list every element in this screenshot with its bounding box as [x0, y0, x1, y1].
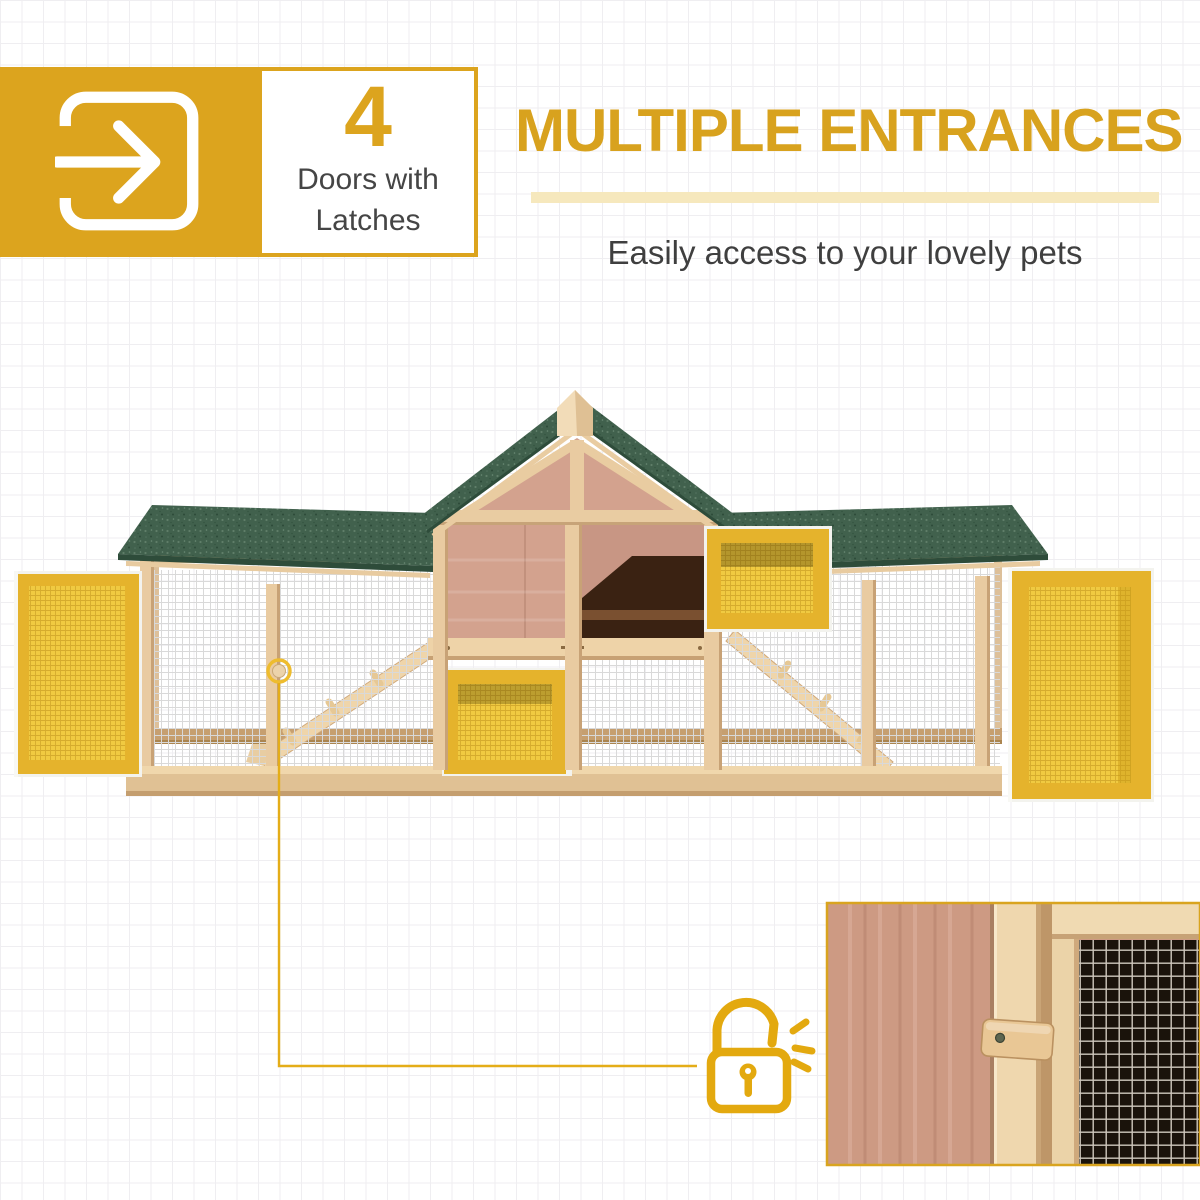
- feature-badge-box: 4 Doors with Latches: [258, 67, 478, 257]
- latch-block: [981, 1019, 1054, 1061]
- door-count: 4: [262, 77, 474, 159]
- top-center-open-door: [704, 526, 832, 632]
- latch-closeup-inset-photo: [827, 903, 1200, 1165]
- gable-roof: [413, 390, 739, 536]
- headline-title: MULTIPLE ENTRANCES: [515, 100, 1175, 162]
- headline-subtitle: Easily access to your lovely pets: [515, 233, 1175, 273]
- door-count-label-line1: Doors with: [262, 159, 474, 200]
- left-run-roof: [118, 505, 433, 578]
- headline: MULTIPLE ENTRANCES Easily access to your…: [515, 100, 1175, 273]
- enter-door-arrow-icon: [55, 87, 203, 235]
- small-yellow-door: [442, 668, 572, 776]
- page-background: 4 Doors with Latches MULTIPLE ENTRANCES …: [0, 0, 1200, 1200]
- door-count-label-line2: Latches: [262, 200, 474, 241]
- unlocked-padlock-icon: [711, 1002, 812, 1109]
- right-open-door: [1008, 568, 1154, 802]
- headline-underline: [531, 192, 1159, 203]
- feature-badge-block: [0, 67, 259, 257]
- left-open-door: [14, 571, 142, 777]
